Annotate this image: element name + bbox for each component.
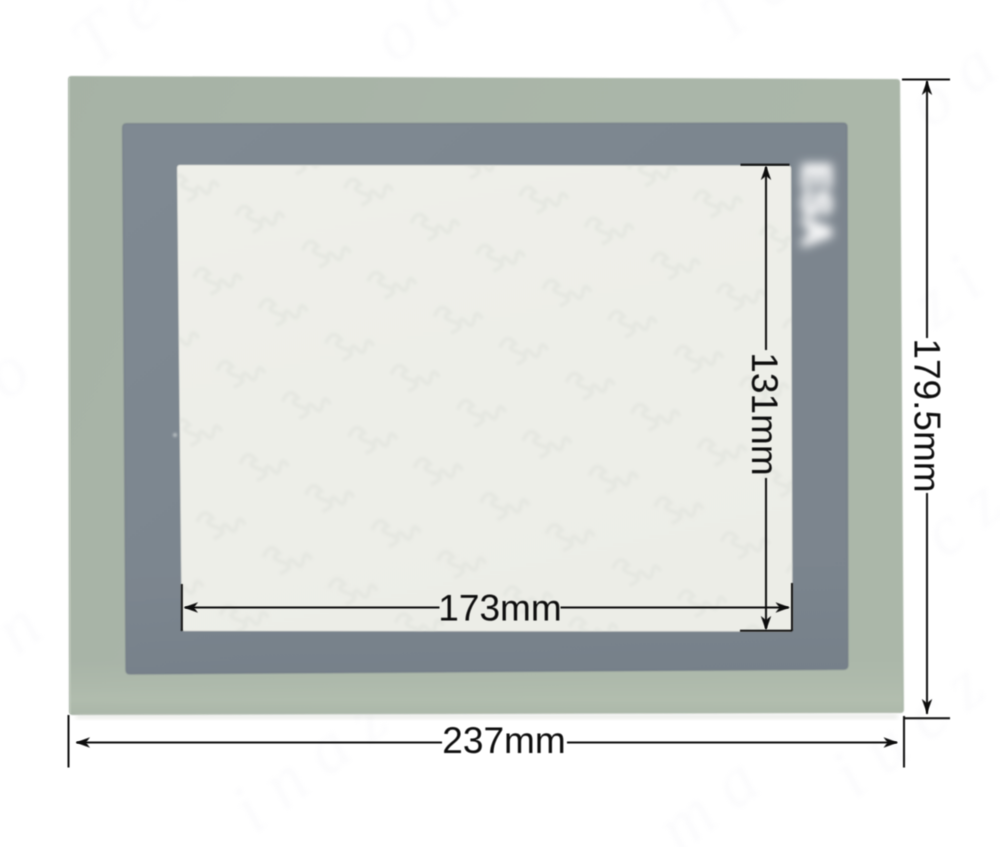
svg-text:o: o bbox=[0, 127, 13, 212]
svg-text:T e c: T e c bbox=[686, 0, 845, 58]
svg-text:131mm: 131mm bbox=[744, 352, 785, 475]
svg-text:179.5mm: 179.5mm bbox=[907, 338, 948, 492]
svg-text:o n: o n bbox=[0, 584, 56, 702]
svg-text:T e c: T e c bbox=[56, 0, 215, 83]
svg-text:ESA: ESA bbox=[794, 162, 838, 247]
svg-text:z o: z o bbox=[0, 329, 44, 443]
svg-text:237mm: 237mm bbox=[442, 720, 565, 761]
svg-text:o a n i: o a n i bbox=[356, 0, 549, 78]
svg-text:o a: o a bbox=[891, 24, 1000, 142]
svg-text:m a: m a bbox=[641, 739, 774, 847]
svg-text:z i: z i bbox=[895, 239, 997, 343]
svg-text:173mm: 173mm bbox=[438, 588, 561, 629]
